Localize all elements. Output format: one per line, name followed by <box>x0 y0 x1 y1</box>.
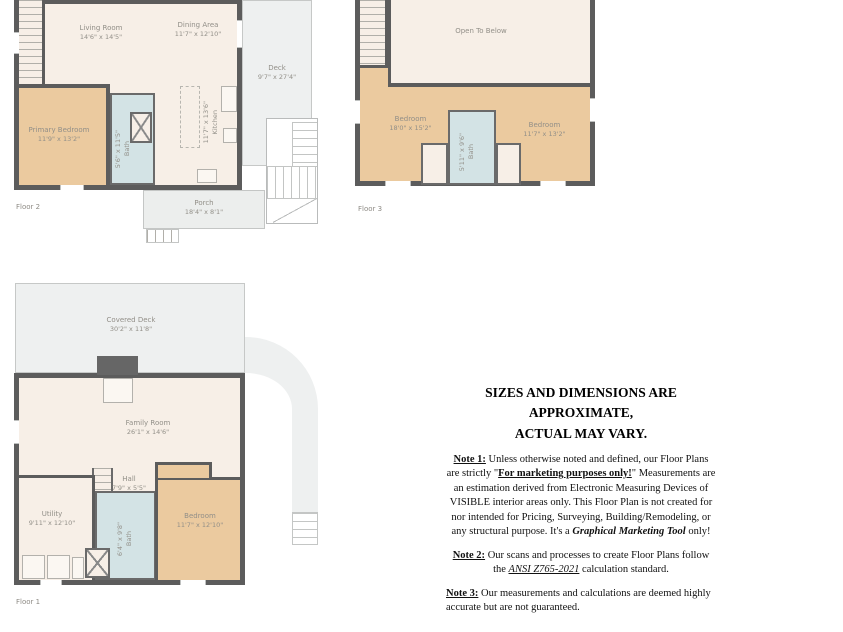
room-label-hall: Hall 7'9" x 5'5" <box>108 475 150 493</box>
deck-stairs-upper-run <box>292 122 317 166</box>
room-label-kitchen: 11'7" x 13'6" Kitchen <box>202 92 219 152</box>
floor2-staircase <box>19 0 45 86</box>
room-label-porch: Porch 18'4" x 8'1" <box>163 199 245 217</box>
floor2-window <box>14 32 19 54</box>
floor3-label: Floor 3 <box>358 205 382 213</box>
note2-label: Note 2: <box>453 550 485 561</box>
room-label-deck: Deck 9'7" x 27'4" <box>252 64 302 82</box>
note1-label: Note 1: <box>454 454 486 465</box>
floor2-closet <box>130 112 152 143</box>
note2-text-end: calculation standard. <box>579 564 669 575</box>
room-label-dining: Dining Area 11'7" x 12'10" <box>158 21 238 39</box>
deck-stairs-rail <box>273 199 317 223</box>
floor1-closet <box>85 548 110 578</box>
room-label-bath-f3: 5'11" x 9'6" Bath <box>458 128 475 176</box>
floor2-kitchen-island <box>180 86 200 148</box>
floor1-dryer <box>47 555 70 579</box>
floorplan-document: Living Room 14'6" x 14'5" Dining Area 11… <box>0 0 843 632</box>
floor3-window <box>355 100 360 124</box>
room-label-bath-f1: 6'4" x 9'8" Bath <box>116 515 133 563</box>
floor1-label: Floor 1 <box>16 598 40 606</box>
note3-label: Note 3: <box>446 588 478 599</box>
room-label-living: Living Room 14'6" x 14'5" <box>57 24 145 42</box>
floor3-window <box>540 181 566 186</box>
floor1-utility-wall-top <box>14 475 94 478</box>
room-label-bath-f2: 5'6" x 11'5" Bath <box>114 125 131 173</box>
room-label-bedroom-right: Bedroom 11'7" x 13'2" <box>502 121 587 139</box>
floor1-walkway-steps <box>292 512 318 545</box>
note1-text-end: only! <box>686 526 711 537</box>
disclaimer-note3: Note 3: Our measurements and calculation… <box>446 587 716 616</box>
floor1-window <box>14 420 19 444</box>
floor2-cabinet <box>223 128 237 143</box>
floor1-utility-sink <box>72 557 84 579</box>
room-label-bedroom-left: Bedroom 18'0" x 15'2" <box>368 115 453 133</box>
note1-marketing-phrase: For marketing purposes only! <box>498 468 632 479</box>
floor3-open-to-below <box>388 0 590 87</box>
room-label-bedroom-f1: Bedroom 11'7" x 12'10" <box>158 512 242 530</box>
floor2-deck-stairs <box>266 118 318 224</box>
floor2-stove <box>197 169 217 183</box>
room-label-primary-bedroom: Primary Bedroom 11'9" x 13'2" <box>14 126 104 144</box>
note3-text: Our measurements and calculations are de… <box>446 588 711 613</box>
floor3-window <box>385 181 411 186</box>
floor3-closet-right <box>496 143 521 185</box>
disclaimer-note2: Note 2: Our scans and processes to creat… <box>446 549 716 578</box>
disclaimer-note1: Note 1: Unless otherwise noted and defin… <box>446 453 716 540</box>
deck-stairs-lower-run <box>267 166 317 199</box>
disclaimer-title-line2: ACTUAL MAY VARY. <box>515 426 647 441</box>
room-label-utility: Utility 9'11" x 12'10" <box>18 510 86 528</box>
floor1-window <box>40 580 62 585</box>
disclaimer-block: SIZES AND DIMENSIONS ARE APPROXIMATE, AC… <box>446 383 716 616</box>
floor1-bedroom-closet <box>155 462 212 478</box>
floor2-window <box>60 185 84 190</box>
floor2-label: Floor 2 <box>16 203 40 211</box>
disclaimer-title-line1: SIZES AND DIMENSIONS ARE APPROXIMATE, <box>485 385 677 420</box>
room-label-covered-deck: Covered Deck 30'2" x 11'8" <box>86 316 176 334</box>
note2-ansi-standard: ANSI Z765-2021 <box>509 564 580 575</box>
floor2-refrigerator <box>221 86 237 112</box>
floor3-staircase <box>360 0 388 68</box>
room-label-family-room: Family Room 26'1" x 14'6" <box>103 419 193 437</box>
floor1-washer <box>22 555 45 579</box>
floor3-closet-left <box>421 143 448 185</box>
note1-tool-phrase: Graphical Marketing Tool <box>572 526 685 537</box>
floor1-hearth <box>103 378 133 403</box>
disclaimer-title: SIZES AND DIMENSIONS ARE APPROXIMATE, AC… <box>446 383 716 444</box>
floor3-window <box>590 98 595 122</box>
floor1-fireplace <box>97 356 138 375</box>
floor1-window <box>180 580 206 585</box>
room-label-open-to-below: Open To Below <box>438 27 524 36</box>
floor2-porch-steps <box>146 229 179 243</box>
